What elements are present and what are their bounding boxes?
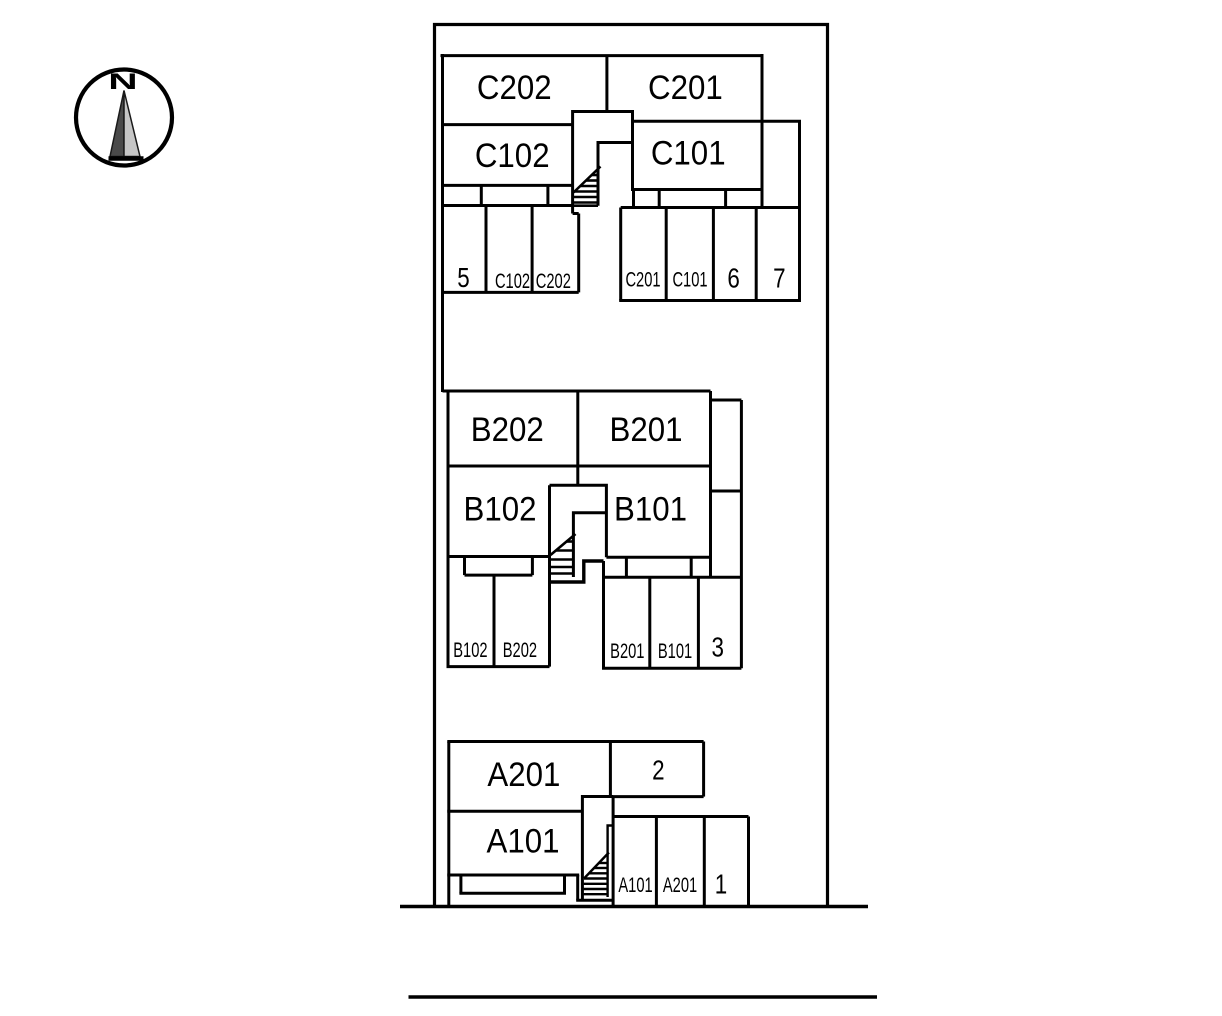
svg-text:7: 7	[773, 263, 785, 294]
svg-text:B102: B102	[453, 639, 487, 662]
svg-text:C201: C201	[625, 268, 660, 291]
svg-text:C202: C202	[536, 269, 571, 292]
svg-text:C101: C101	[672, 268, 707, 291]
svg-text:A201: A201	[663, 873, 697, 896]
svg-text:B101: B101	[614, 489, 687, 528]
svg-text:C101: C101	[651, 133, 726, 172]
svg-text:2: 2	[652, 755, 664, 786]
svg-text:B202: B202	[503, 639, 537, 662]
svg-text:N: N	[108, 69, 137, 94]
svg-text:B102: B102	[463, 489, 536, 528]
svg-text:3: 3	[711, 632, 723, 663]
svg-text:B201: B201	[610, 639, 644, 662]
svg-text:C201: C201	[648, 68, 723, 107]
svg-text:B101: B101	[658, 639, 692, 662]
svg-text:A101: A101	[618, 873, 652, 896]
svg-text:1: 1	[715, 869, 727, 900]
svg-text:C102: C102	[495, 269, 530, 292]
svg-text:A201: A201	[487, 755, 560, 794]
svg-text:B201: B201	[609, 410, 682, 449]
svg-text:B202: B202	[471, 410, 544, 449]
svg-text:C102: C102	[475, 136, 550, 175]
svg-text:C202: C202	[477, 68, 552, 107]
svg-text:5: 5	[457, 263, 469, 294]
svg-text:6: 6	[727, 263, 739, 294]
svg-text:A101: A101	[486, 821, 559, 860]
